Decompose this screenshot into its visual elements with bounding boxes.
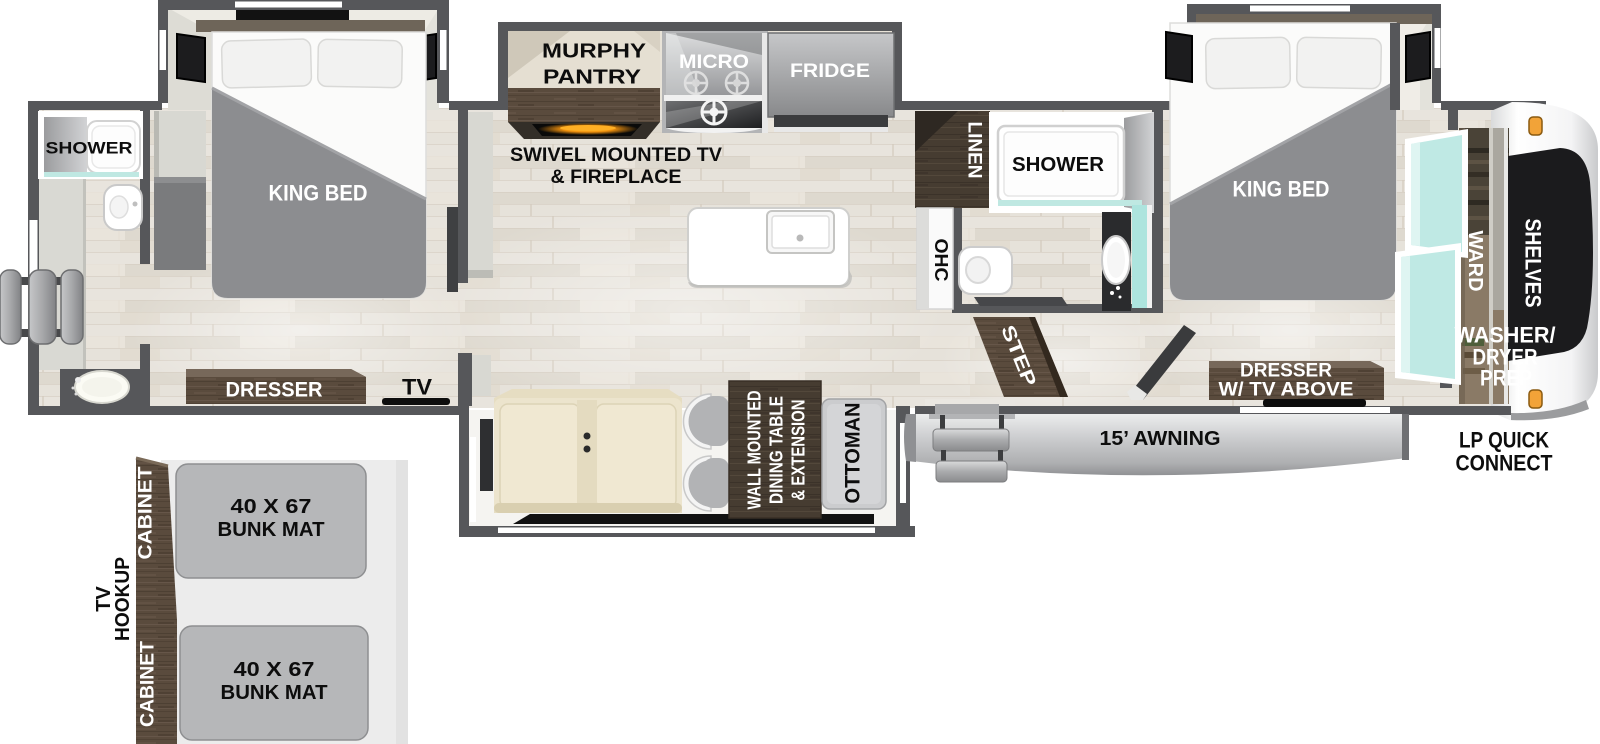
svg-text:WARD: WARD [1464,231,1486,292]
svg-text:TV: TV [402,375,432,400]
svg-text:MICRO: MICRO [679,51,749,73]
svg-text:OTTOMAN: OTTOMAN [842,403,865,504]
svg-text:SWIVEL MOUNTED TV: SWIVEL MOUNTED TV [510,144,722,166]
svg-text:40 X 67: 40 X 67 [231,496,312,518]
svg-text:SHOWER: SHOWER [46,139,133,158]
svg-text:DRESSER: DRESSER [226,379,323,402]
svg-text:CONNECT: CONNECT [1456,451,1553,476]
svg-text:WALL MOUNTED: WALL MOUNTED [744,391,765,510]
svg-text:DINING TABLE: DINING TABLE [766,396,787,504]
svg-text:CABINET: CABINET [136,466,157,559]
svg-text:SHELVES: SHELVES [1521,219,1546,308]
svg-text:LP QUICK: LP QUICK [1459,428,1549,453]
svg-text:KING BED: KING BED [1233,177,1330,202]
svg-text:W/ TV ABOVE: W/ TV ABOVE [1219,380,1354,401]
svg-text:DRESSER: DRESSER [1240,361,1332,382]
svg-text:FRIDGE: FRIDGE [790,60,870,82]
svg-text:40 X 67: 40 X 67 [234,659,315,681]
svg-text:CABINET: CABINET [138,641,159,727]
svg-text:& EXTENSION: & EXTENSION [788,400,809,501]
svg-text:SHOWER: SHOWER [1012,154,1105,176]
svg-text:PANTRY: PANTRY [543,66,641,89]
svg-text:& FIREPLACE: & FIREPLACE [551,166,682,188]
svg-text:OHC: OHC [931,239,951,282]
svg-text:BUNK MAT: BUNK MAT [218,519,325,541]
svg-text:LINEN: LINEN [964,122,985,179]
svg-text:MURPHY: MURPHY [542,40,646,63]
svg-text:15’ AWNING: 15’ AWNING [1100,428,1221,450]
svg-text:BUNK MAT: BUNK MAT [221,682,328,704]
svg-text:PREP: PREP [1480,366,1532,391]
svg-text:KING BED: KING BED [269,181,368,206]
svg-text:HOOKUP: HOOKUP [112,557,134,641]
